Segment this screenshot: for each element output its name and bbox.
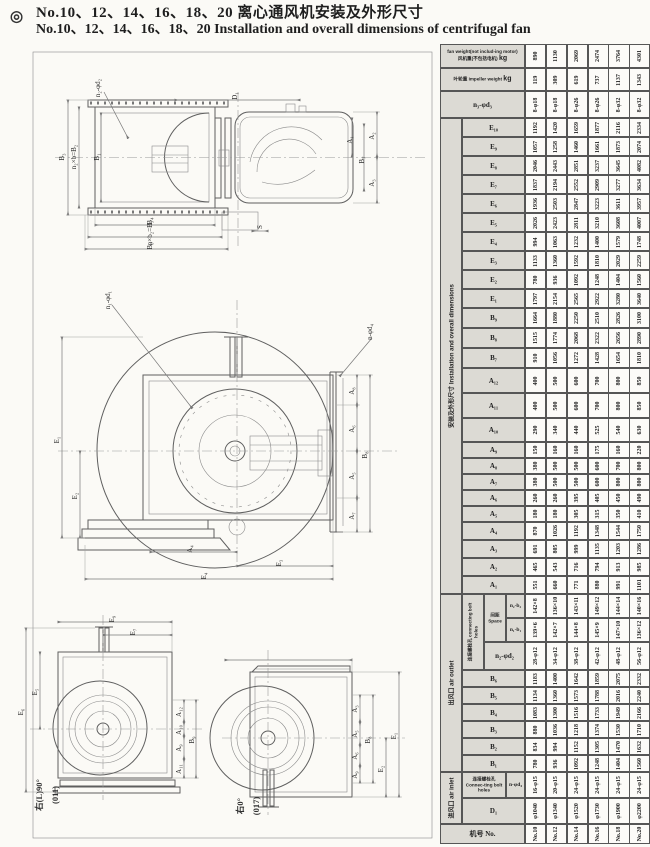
table-cell: 3277 (608, 175, 629, 194)
table-cell: 2510 (588, 308, 609, 328)
table-header-label: E₂ (462, 270, 525, 289)
table-header-label: A₈ (462, 458, 525, 474)
table-cell: 145×9 (588, 618, 609, 642)
table-cell: 880 (525, 721, 546, 738)
table-cell: 913 (608, 558, 629, 576)
table-cell: No.10 (525, 824, 546, 844)
table-header-impeller-weight: 叶轮重 impeller weight kg (440, 68, 525, 91)
table-cell: 1632 (629, 738, 650, 755)
table-cell: 180 (525, 506, 546, 522)
table-cell: 160 (608, 442, 629, 458)
table-header-label: A₁₁ (462, 393, 525, 418)
table-cell: 936 (546, 755, 567, 772)
table-cell: 3210 (588, 213, 609, 232)
dimension-label: B₈ (361, 451, 369, 459)
table-cell: 525 (588, 418, 609, 442)
table-cell: 2851 (567, 156, 588, 175)
table-cell: 1530 (608, 721, 629, 738)
table-cell: 1130 (546, 44, 567, 68)
dimension-label: A₁ (346, 136, 354, 144)
table-cell: 890 (525, 44, 546, 68)
table-header-label: n₂-b₂ (506, 594, 525, 618)
table-cell: 794 (588, 558, 609, 576)
table-cell: 2656 (608, 328, 629, 348)
dimension-label: E₇ (129, 628, 137, 635)
table-cell: 2322 (588, 328, 609, 348)
table-cell: 1092 (567, 270, 588, 289)
table-cell: 1101 (629, 576, 650, 594)
table-cell: 3611 (608, 194, 629, 213)
table-header-label: E₉ (462, 137, 525, 156)
table-cell: 160 (546, 442, 567, 458)
table-cell: 24-φ15 (588, 772, 609, 798)
table-cell: 500 (546, 368, 567, 393)
table-header-label: B₅ (462, 687, 525, 704)
table-cell: 691 (525, 540, 546, 558)
dimension-label: A₉ (351, 771, 359, 779)
table-cell: 1063 (546, 232, 567, 251)
table-cell: 780 (525, 755, 546, 772)
table-cell: 800 (608, 368, 629, 393)
table-cell: 1661 (588, 137, 609, 156)
table-cell: 2334 (629, 118, 650, 137)
table-cell: 870 (525, 522, 546, 540)
table-cell: 1873 (608, 137, 629, 156)
table-cell: 1654 (608, 348, 629, 368)
table-cell: 2443 (546, 156, 567, 175)
table-cell: 834 (525, 738, 546, 755)
table-cell: 350 (608, 506, 629, 522)
table-cell: 543 (546, 558, 567, 576)
table-cell: 1092 (567, 755, 588, 772)
table-cell: 340 (546, 418, 567, 442)
table-cell: 1057 (525, 137, 546, 156)
table-cell: 2423 (546, 213, 567, 232)
table-cell: 1258 (546, 137, 567, 156)
table-cell: 8-φ32 (629, 91, 650, 118)
table-cell: 143×11 (567, 594, 588, 618)
table-header-label: E₆ (462, 194, 525, 213)
table-cell: 1797 (525, 289, 546, 308)
table-cell: 1248 (588, 270, 609, 289)
table-cell: φ1730 (588, 798, 609, 824)
table-cell: 160 (567, 442, 588, 458)
table-header-label: A₆ (462, 490, 525, 506)
table-cell: 2552 (567, 175, 588, 194)
table-cell: 1083 (525, 704, 546, 721)
dimension-label: B₇ (358, 156, 366, 164)
table-header-label: n₃-φd₃ (440, 91, 525, 118)
table-cell: 2075 (608, 670, 629, 687)
table-cell: 1400 (588, 232, 609, 251)
table-cell: 395 (567, 490, 588, 506)
table-cell: φ1040 (525, 798, 546, 824)
table-cell: 600 (567, 393, 588, 418)
table-cell: 1949 (608, 704, 629, 721)
dimension-label: E₂ (377, 765, 385, 772)
table-cell: 1348 (588, 522, 609, 540)
table-cell: 140×16 (629, 594, 650, 618)
table-cell: 2474 (588, 44, 609, 68)
table-cell: No.12 (546, 824, 567, 844)
table-cell: 1837 (525, 175, 546, 194)
table-header-label: A₁₂ (462, 368, 525, 393)
table-cell: 2259 (629, 251, 650, 270)
table-header-label: E₅ (462, 213, 525, 232)
table-cell: 3640 (629, 289, 650, 308)
table-header-fan-weight: fan weight(not includ-ing motor)风机重(不包括电… (440, 44, 525, 68)
right-small-view-drawing (210, 650, 405, 815)
table-cell: 2026 (525, 213, 546, 232)
table-cell: 991 (608, 576, 629, 594)
table-header-label: B₄ (462, 704, 525, 721)
table-cell: 1774 (546, 328, 567, 348)
table-cell: 994 (546, 738, 567, 755)
table-cell: 405 (588, 490, 609, 506)
table-header-label: A₄ (462, 522, 525, 540)
table-cell: 1374 (588, 721, 609, 738)
table-cell: 700 (588, 393, 609, 418)
dimension-label: E₆ (17, 708, 25, 715)
table-header-label: E₁₀ (462, 118, 525, 137)
table-cell: 600 (588, 458, 609, 474)
dimension-label: A₅ (351, 730, 359, 738)
table-header-label: B₇ (462, 348, 525, 368)
table-cell: 1659 (567, 118, 588, 137)
table-header-label: B₆ (462, 670, 525, 687)
table-cell: 1859 (588, 670, 609, 687)
table-cell: 619 (567, 68, 588, 91)
drawing-dimension-labels: n₂-φd₂B₃n₂×b=B₂B₁D₁A₂A₁B₇A₃B₄n×b₂=B₅B₆Sn… (17, 78, 398, 815)
table-cell: 56-φ12 (629, 642, 650, 670)
dimension-label: A₇ (348, 512, 356, 520)
table-cell: 1404 (608, 755, 629, 772)
table-cell: No.16 (588, 824, 609, 844)
table-cell: 1880 (546, 308, 567, 328)
table-group-header: 进风口 air inlet (440, 772, 462, 824)
table-cell: 994 (525, 232, 546, 251)
table-cell: φ1340 (546, 798, 567, 824)
table-cell: 3280 (608, 289, 629, 308)
table-cell: 290 (525, 418, 546, 442)
top-view-drawing (55, 92, 425, 251)
table-cell: 3237 (588, 156, 609, 175)
table-cell: 147×10 (608, 618, 629, 642)
table-cell: 1420 (546, 118, 567, 137)
table-group-header: 安装及外形尺寸 Installation and overall dimensi… (440, 118, 462, 594)
table-cell: 4082 (629, 156, 650, 175)
table-cell: 8-φ18 (546, 91, 567, 118)
table-cell: 305 (567, 506, 588, 522)
table-cell: 985 (629, 558, 650, 576)
dimension-label: B₉ (188, 736, 196, 744)
table-cell: 2068 (567, 328, 588, 348)
table-cell: 2503 (546, 194, 567, 213)
table-cell: φ1520 (567, 798, 588, 824)
table-cell: 1135 (588, 540, 609, 558)
dimension-label: A₁₁ (175, 764, 183, 774)
table-cell: 1664 (525, 308, 546, 328)
table-header-label: A₁₀ (462, 418, 525, 442)
table-cell: 1573 (567, 687, 588, 704)
dimension-label: A₅ (348, 472, 356, 480)
table-cell: 936 (546, 270, 567, 289)
table-cell: 2826 (608, 308, 629, 328)
table-cell: 2811 (567, 213, 588, 232)
dimension-label: B₁ (93, 153, 101, 160)
dimension-label: A₆ (348, 425, 356, 433)
table-cell: 1134 (525, 687, 546, 704)
figure-frame (33, 52, 432, 838)
table-cell: 1286 (629, 540, 650, 558)
dimension-label: A₃ (368, 179, 376, 187)
table-cell: 1232 (567, 232, 588, 251)
table-cell: 24-φ15 (567, 772, 588, 798)
table-cell: 1360 (546, 251, 567, 270)
table-cell: 1428 (588, 348, 609, 368)
table-cell: 1748 (629, 232, 650, 251)
table-cell: 800 (629, 474, 650, 490)
table-cell: 450 (608, 490, 629, 506)
table-cell: 1305 (588, 738, 609, 755)
dimension-label: B₈ (364, 736, 372, 744)
table-cell: No.18 (608, 824, 629, 844)
table-cell: 2922 (588, 289, 609, 308)
table-cell: 2909 (588, 175, 609, 194)
front-view-drawing (58, 300, 400, 581)
table-cell: 1183 (525, 670, 546, 687)
table-subgroup-header: 连接螺栓孔 Connec-ting bolt holes (462, 772, 506, 798)
table-cell: 2166 (629, 704, 650, 721)
table-cell: 1137 (608, 68, 629, 91)
table-header-label: B₂ (462, 738, 525, 755)
table-cell: 260 (546, 490, 567, 506)
dimension-label: E₂ (71, 492, 79, 499)
table-cell: 500 (567, 474, 588, 490)
table-cell: 16-φ15 (525, 772, 546, 798)
table-header-label: B₁ (462, 755, 525, 772)
table-cell: 850 (629, 393, 650, 418)
dimension-label: A₉ (175, 744, 183, 752)
table-cell: 540 (608, 418, 629, 442)
dimension-label: n×b₂=B₅ (146, 220, 154, 245)
table-cell: 1750 (629, 522, 650, 540)
table-cell: 1877 (588, 118, 609, 137)
table-cell: 24-φ15 (608, 772, 629, 798)
table-cell: 4301 (629, 44, 650, 68)
table-cell: 380 (525, 458, 546, 474)
table-header-label: A₂ (462, 558, 525, 576)
table-cell: 1404 (608, 270, 629, 289)
table-cell: 1218 (567, 721, 588, 738)
table-cell: 1592 (567, 251, 588, 270)
table-cell: No.20 (629, 824, 650, 844)
table-cell: 24-φ15 (629, 772, 650, 798)
table-cell: 1936 (525, 194, 546, 213)
table-cell: No.14 (567, 824, 588, 844)
table-cell: 771 (567, 576, 588, 594)
table-cell: 180 (546, 506, 567, 522)
table-cell: 1133 (525, 251, 546, 270)
table-cell: 660 (546, 576, 567, 594)
table-cell: 1810 (588, 251, 609, 270)
table-cell: 490 (629, 490, 650, 506)
dimension-label: E₃ (275, 559, 283, 566)
table-cell: 700 (588, 368, 609, 393)
dimension-label: A₃ (351, 705, 359, 713)
table-header-label: n₂-φd₂ (484, 642, 525, 670)
table-cell: 136×10 (546, 594, 567, 618)
table-cell: 800 (629, 458, 650, 474)
table-cell: 1642 (567, 670, 588, 687)
dimension-label: S (256, 225, 264, 229)
dimension-label: 右(L)90° (34, 779, 44, 812)
table-cell: 2194 (546, 175, 567, 194)
table-cell: 1460 (567, 137, 588, 156)
table-cell: 2154 (546, 289, 567, 308)
dimension-label: n₂-φd₂ (94, 78, 102, 97)
table-cell: 1470 (608, 738, 629, 755)
table-header-label: E₃ (462, 251, 525, 270)
table-cell: 1360 (546, 687, 567, 704)
table-cell: 1343 (629, 68, 650, 91)
table-cell: 2240 (629, 687, 650, 704)
table-cell: 465 (525, 558, 546, 576)
table-header-label: B₈ (462, 328, 525, 348)
table-cell: φ2200 (629, 798, 650, 824)
table-cell: 1560 (629, 270, 650, 289)
table-cell: 142×7 (546, 618, 567, 642)
table-cell: 500 (546, 458, 567, 474)
table-cell: 400 (525, 393, 546, 418)
table-cell: 2250 (567, 308, 588, 328)
table-cell: 630 (629, 418, 650, 442)
table-cell: 1036 (546, 721, 567, 738)
table-cell: 2332 (629, 670, 650, 687)
table-cell: 2074 (629, 137, 650, 156)
table-cell: 500 (546, 393, 567, 418)
dimension-label: E₄ (200, 572, 208, 579)
table-cell: 3764 (608, 44, 629, 68)
table-cell: φ1900 (608, 798, 629, 824)
dimension-label: B₆ (146, 242, 154, 250)
table-cell: 1788 (588, 687, 609, 704)
table-cell: 8-φ26 (588, 91, 609, 118)
dimension-label: E₁ (390, 733, 398, 740)
table-header-label: A₅ (462, 506, 525, 522)
dimension-label: A₁₂ (175, 706, 183, 716)
table-cell: 150 (525, 442, 546, 458)
table-header-label: A₉ (462, 442, 525, 458)
table-cell: 149×12 (588, 594, 609, 618)
dimension-label: (017) (251, 797, 261, 816)
table-cell: 910 (525, 348, 546, 368)
table-header-label: E₄ (462, 232, 525, 251)
dimension-label: 右0° (235, 798, 245, 815)
table-cell: 260 (525, 490, 546, 506)
table-cell: 1192 (567, 522, 588, 540)
table-cell: 2029 (608, 251, 629, 270)
dimension-label: A₈ (348, 387, 356, 395)
table-cell: 850 (629, 368, 650, 393)
table-header-label: n-φd₄ (506, 772, 525, 798)
dimension-label: n-φd₄ (366, 324, 374, 340)
table-cell: 1544 (608, 522, 629, 540)
dimension-label: E₅ (31, 688, 39, 695)
table-cell: 2565 (567, 289, 588, 308)
table-header-label: A₁ (462, 576, 525, 594)
table-cell: 805 (546, 540, 567, 558)
table-cell: 3608 (608, 213, 629, 232)
table-cell: 142×8 (525, 594, 546, 618)
table-cell: 4007 (629, 213, 650, 232)
table-cell: 28-φ12 (525, 642, 546, 670)
table-cell: 880 (588, 576, 609, 594)
table-header-label: E₈ (462, 156, 525, 175)
table-cell: 1400 (546, 670, 567, 687)
table-group-header: 出风口 air outlet (440, 594, 462, 772)
table-cell: 8-φ26 (567, 91, 588, 118)
table-cell: 1152 (567, 738, 588, 755)
table-cell: 2890 (629, 328, 650, 348)
table-cell: 2847 (567, 194, 588, 213)
table-cell: 716 (567, 558, 588, 576)
table-cell: 551 (525, 576, 546, 594)
table-cell: 2069 (567, 44, 588, 68)
table-cell: 20-φ15 (546, 772, 567, 798)
dimension-label: (011) (50, 786, 60, 804)
table-cell: 315 (588, 506, 609, 522)
table-cell: 2116 (608, 118, 629, 137)
table-header-label: D₁ (462, 798, 525, 824)
table-header-label: B₃ (462, 721, 525, 738)
table-cell: 380 (525, 474, 546, 490)
table-header-label: n₁-b₁ (506, 618, 525, 642)
table-header-label: A₃ (462, 540, 525, 558)
table-cell: 500 (546, 474, 567, 490)
table-cell: 1515 (525, 328, 546, 348)
table-cell: 2046 (525, 156, 546, 175)
table-cell: 8-φ32 (608, 91, 629, 118)
table-cell: 800 (608, 393, 629, 418)
table-cell: 500 (567, 458, 588, 474)
table-cell: 2016 (608, 687, 629, 704)
table-cell: 1579 (608, 232, 629, 251)
table-subgroup-header: 间距 Space (484, 594, 506, 642)
dimension-label: D₁ (231, 92, 239, 100)
dimension-label: n₁-φd₁ (104, 291, 112, 309)
dimension-label: B₃ (58, 153, 66, 161)
table-cell: 175 (588, 442, 609, 458)
table-cell: 144×14 (608, 594, 629, 618)
table-cell: 440 (567, 418, 588, 442)
table-cell: 1203 (608, 540, 629, 558)
table-cell: 136×12 (629, 618, 650, 642)
dimension-label: n₂×b=B₂ (70, 144, 78, 169)
dimension-label: A₂ (368, 132, 376, 140)
table-cell: 1026 (546, 522, 567, 540)
table-cell: 1192 (525, 118, 546, 137)
table-header-label: A₇ (462, 474, 525, 490)
table-cell: 1300 (546, 704, 567, 721)
table-cell: 1733 (588, 704, 609, 721)
table-cell: 3223 (588, 194, 609, 213)
table-cell: 3645 (608, 156, 629, 175)
table-cell: 3100 (629, 308, 650, 328)
table-cell: 1710 (629, 721, 650, 738)
table-cell: 1272 (567, 348, 588, 368)
table-cell: 700 (608, 458, 629, 474)
